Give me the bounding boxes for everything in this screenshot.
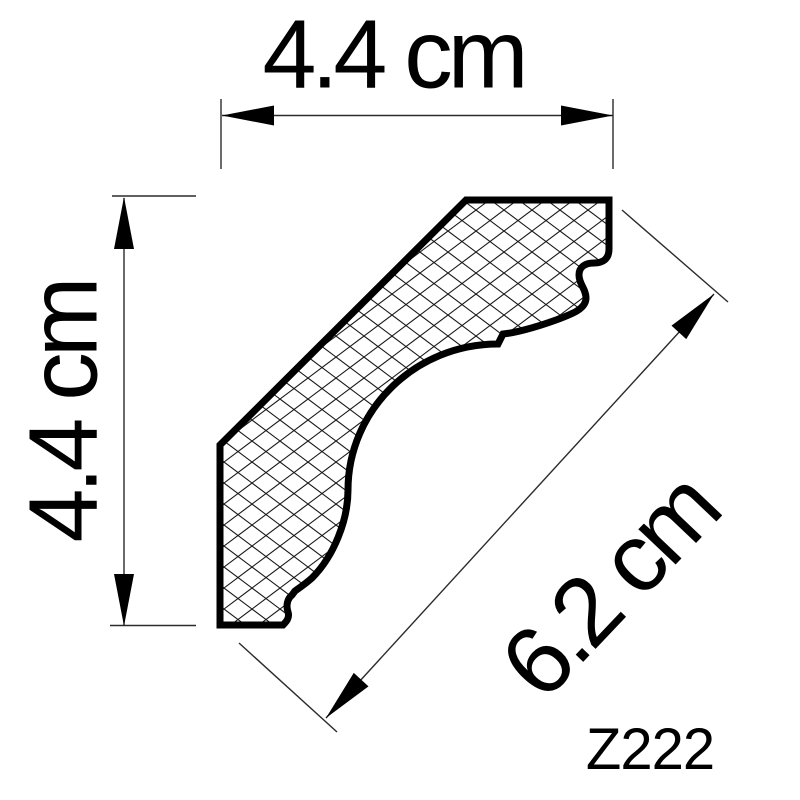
diagonal-dim-extension-line-upper <box>622 210 728 302</box>
top-dim-arrowhead-left-icon <box>222 106 274 126</box>
drawing-svg <box>0 0 800 800</box>
diagonal-dim-extension-line-lower <box>239 643 337 732</box>
left-dim-arrowhead-top-icon <box>114 197 134 249</box>
technical-drawing-canvas: 4.4 cm 4.4 cm 6.2 cm Z222 <box>0 0 800 800</box>
top-dim-arrowhead-right-icon <box>561 106 613 126</box>
dimension-label-left: 4.4 cm <box>15 281 112 542</box>
left-dim-arrowhead-bottom-icon <box>114 574 134 626</box>
dimension-label-top: 4.4 cm <box>262 6 523 103</box>
molding-profile-shape <box>220 200 609 625</box>
product-code-label: Z222 <box>586 721 714 779</box>
